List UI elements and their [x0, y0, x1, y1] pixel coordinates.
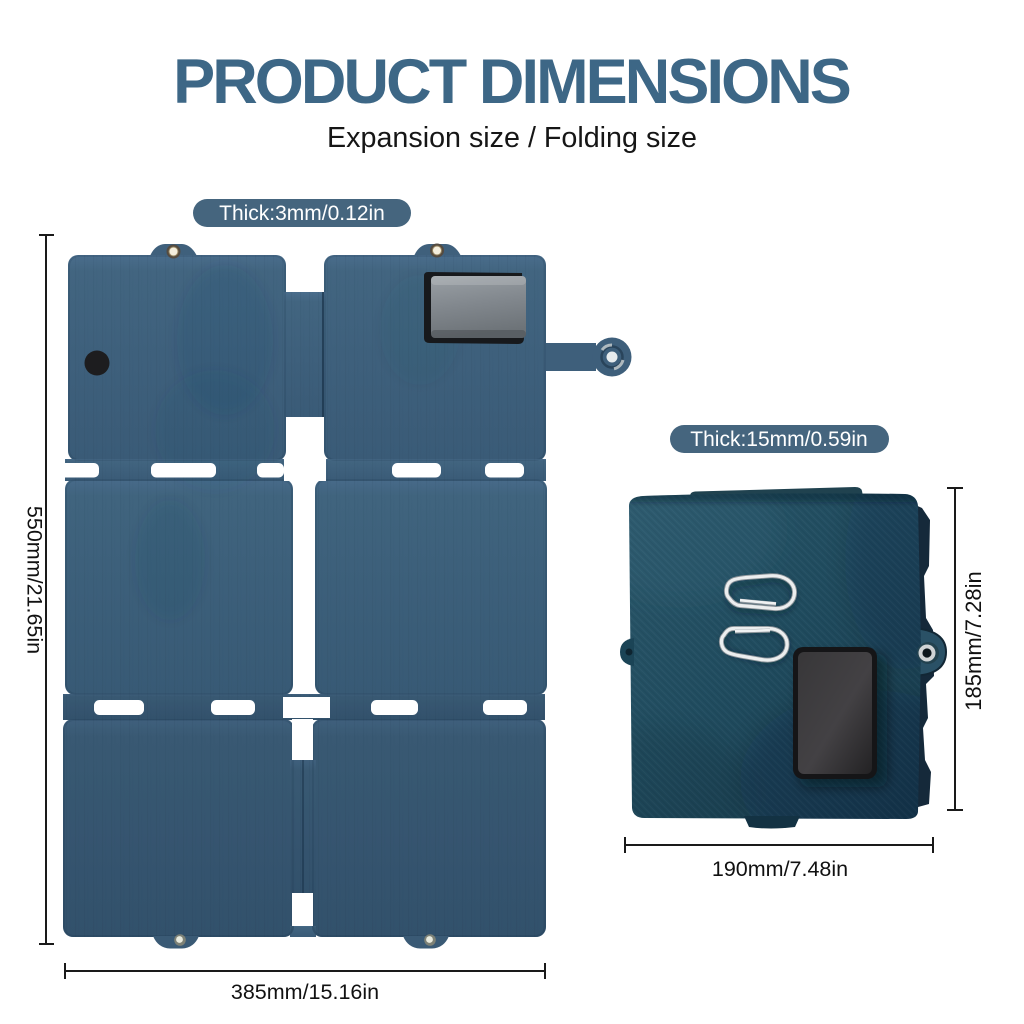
svg-text:550mm/21.65in: 550mm/21.65in — [23, 506, 47, 654]
svg-text:Expansion size / Folding size: Expansion size / Folding size — [327, 122, 697, 154]
svg-text:185mm/7.28in: 185mm/7.28in — [961, 571, 986, 710]
svg-text:Thick:15mm/0.59in: Thick:15mm/0.59in — [690, 428, 867, 451]
svg-text:Thick:3mm/0.12in: Thick:3mm/0.12in — [219, 202, 385, 225]
svg-text:190mm/7.48in: 190mm/7.48in — [712, 857, 848, 881]
svg-text:PRODUCT DIMENSIONS: PRODUCT DIMENSIONS — [173, 47, 850, 117]
svg-text:385mm/15.16in: 385mm/15.16in — [231, 980, 379, 1004]
